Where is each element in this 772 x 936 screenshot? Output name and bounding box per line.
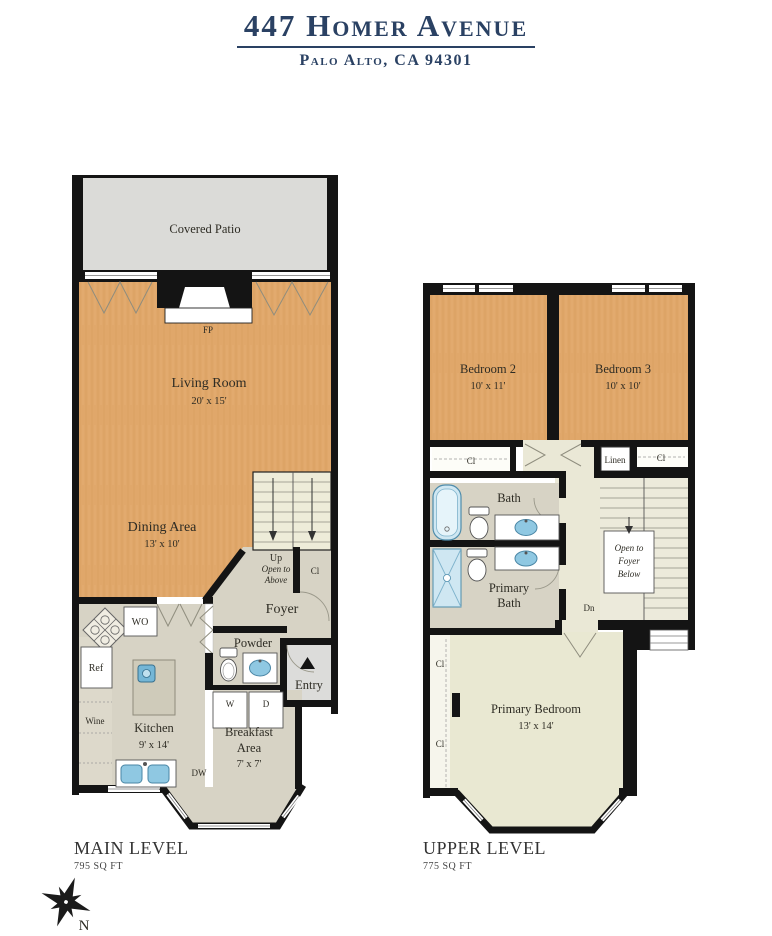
main-level-title: MAIN LEVEL [74,838,188,859]
foyer-label: Foyer [266,602,299,617]
foyer-closet-label: Cl [311,566,320,576]
page-title: 447 Homer Avenue [0,8,772,44]
bedroom3-label: Bedroom 3 [595,362,651,376]
dryer [249,692,283,728]
page-subtitle: Palo Alto, CA 94301 [0,52,772,70]
open-to-foyer-label3: Below [618,569,641,579]
open-to-foyer-label2: Foyer [617,556,640,566]
dryer-label: D [263,699,270,709]
washer [213,692,247,728]
kitchen-dims: 9' x 14' [139,740,169,751]
fridge-label: Ref [89,663,104,674]
open-to-above-label2: Above [264,575,288,585]
window-seat [650,630,688,650]
bedroom2-closet-label: Cl [467,456,476,466]
title-underline [237,46,535,48]
entry-label: Entry [295,678,324,692]
primary-bath-label1: Primary [489,581,530,595]
floor-plan-page: 447 Homer Avenue Palo Alto, CA 94301 [0,0,772,936]
wall-oven-label: WO [132,617,149,628]
bedroom3-closet-label: Cl [657,453,666,463]
header: 447 Homer Avenue Palo Alto, CA 94301 [0,8,772,70]
main-level-area: 795 SQ FT [74,861,188,872]
dining-area-dims: 13' x 10' [144,539,179,550]
wine-label: Wine [85,716,104,726]
main-level-plan: Covered Patio FP Living Room 20' x 15' D… [72,175,338,835]
bedroom2-label: Bedroom 2 [460,362,516,376]
compass-rose-icon: N [36,876,102,936]
main-level-caption: MAIN LEVEL 795 SQ FT [74,838,188,872]
stairs-up-label: Up [270,553,282,564]
open-to-foyer-label1: Open to [615,543,644,553]
compass-north-label: N [79,918,90,934]
upper-level-plan: Bedroom 2 10' x 11' Bedroom 3 10' x 10' … [423,283,695,835]
living-room-dims: 20' x 15' [191,396,226,407]
island-sink-icon [138,665,155,682]
upper-level-area: 775 SQ FT [423,861,546,872]
primary-sink-icon [495,547,559,570]
bedroom3-dims: 10' x 10' [605,381,640,392]
primary-closet-label1: Cl [436,659,445,669]
open-to-above-label1: Open to [262,564,291,574]
shower-icon [433,549,461,607]
primary-bedroom-dims: 13' x 14' [518,721,553,732]
kitchen-sink-icon [116,760,176,787]
kitchen-label: Kitchen [134,721,174,735]
washer-label: W [226,699,235,709]
stairs-down-label: Dn [584,603,595,613]
upper-level-title: UPPER LEVEL [423,838,546,859]
bath-sink-icon [495,515,559,540]
stairs-up-icon [253,472,331,550]
bath-label: Bath [497,491,521,505]
dishwasher-label: DW [192,768,207,778]
living-room-label: Living Room [171,376,246,391]
upper-level-caption: UPPER LEVEL 775 SQ FT [423,838,546,872]
powder-sink-icon [243,653,277,683]
primary-closet-label2: Cl [436,739,445,749]
primary-bedroom-label: Primary Bedroom [491,702,581,716]
primary-bath-label2: Bath [497,596,521,610]
breakfast-dims: 7' x 7' [237,759,262,770]
breakfast-label2: Area [237,741,262,755]
bedroom2-dims: 10' x 11' [471,381,506,392]
toilet-icon [467,549,487,581]
breakfast-label1: Breakfast [225,725,273,739]
dining-area-label: Dining Area [128,520,198,535]
fireplace-icon [157,270,252,323]
toilet-icon [469,507,489,539]
linen-label: Linen [605,455,626,465]
toilet-icon [220,648,237,681]
bathtub-icon [433,485,461,540]
powder-label: Powder [234,636,273,650]
covered-patio-label: Covered Patio [169,222,240,236]
fireplace-label: FP [203,325,213,335]
